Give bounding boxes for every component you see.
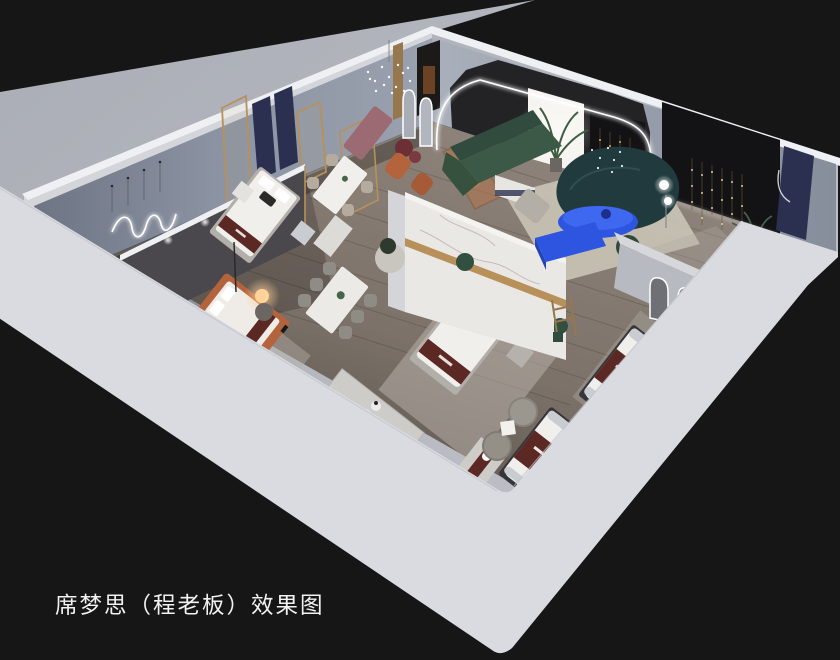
dining-chair: [307, 177, 319, 189]
caption-title: 席梦思（程老板）效果图: [55, 593, 325, 618]
round-ottoman: [409, 151, 421, 163]
oval-mirror: [420, 98, 432, 146]
blue-coffee-table-top: [563, 206, 633, 230]
dining-chair: [351, 310, 364, 323]
green-cube-stool: [553, 332, 563, 342]
dining-chair: [342, 204, 354, 216]
render-stage: 席梦思（程老板）效果图: [0, 0, 840, 660]
dining-chair: [364, 294, 377, 307]
corridor-artwork: [423, 66, 435, 94]
round-bedside-table: [255, 303, 273, 321]
dining-chair: [339, 326, 352, 339]
dining-chair: [323, 262, 336, 275]
boucle-tub-chair: [483, 432, 511, 460]
cube-side-table: [500, 420, 516, 436]
table-decor: [601, 209, 611, 219]
dining-chair: [310, 278, 323, 291]
corridor-wood-trim: [393, 42, 403, 120]
spotlight-pool: [200, 217, 210, 227]
spotlight-pool: [163, 235, 173, 245]
potted-plant: [380, 238, 396, 254]
dining-chair: [298, 294, 311, 307]
dining-chair: [326, 154, 338, 166]
showroom-render: 席梦思（程老板）效果图: [0, 0, 840, 660]
dining-chair: [361, 181, 373, 193]
green-bench-cushion: [456, 253, 474, 271]
oval-mirror: [403, 90, 415, 138]
white-cabinet: [538, 318, 554, 334]
cylinder-lamp-cap: [374, 401, 378, 405]
